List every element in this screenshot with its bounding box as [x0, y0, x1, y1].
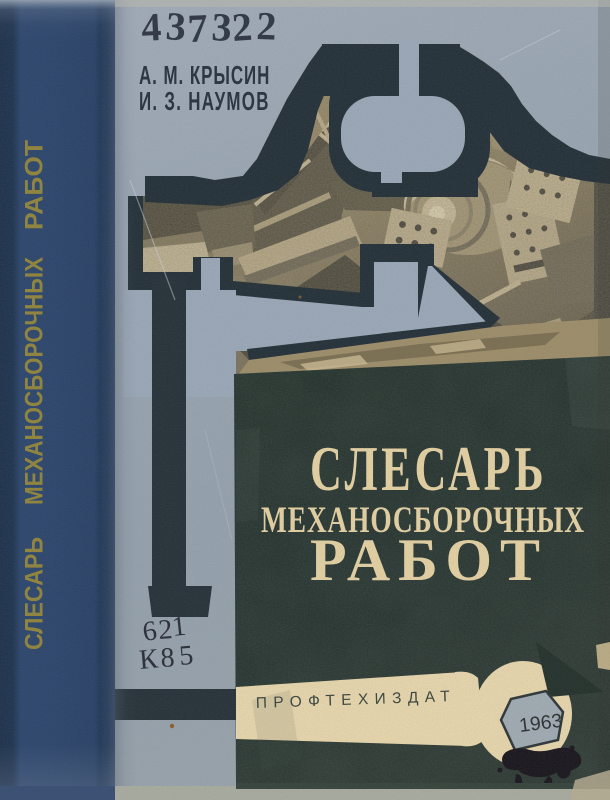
svg-text:РАБОТ: РАБОТ: [21, 140, 49, 230]
svg-text:СЛЕСАРЬ: СЛЕСАРЬ: [21, 537, 49, 650]
svg-text:МЕХАНОСБОРОЧНЫХ: МЕХАНОСБОРОЧНЫХ: [21, 257, 49, 505]
